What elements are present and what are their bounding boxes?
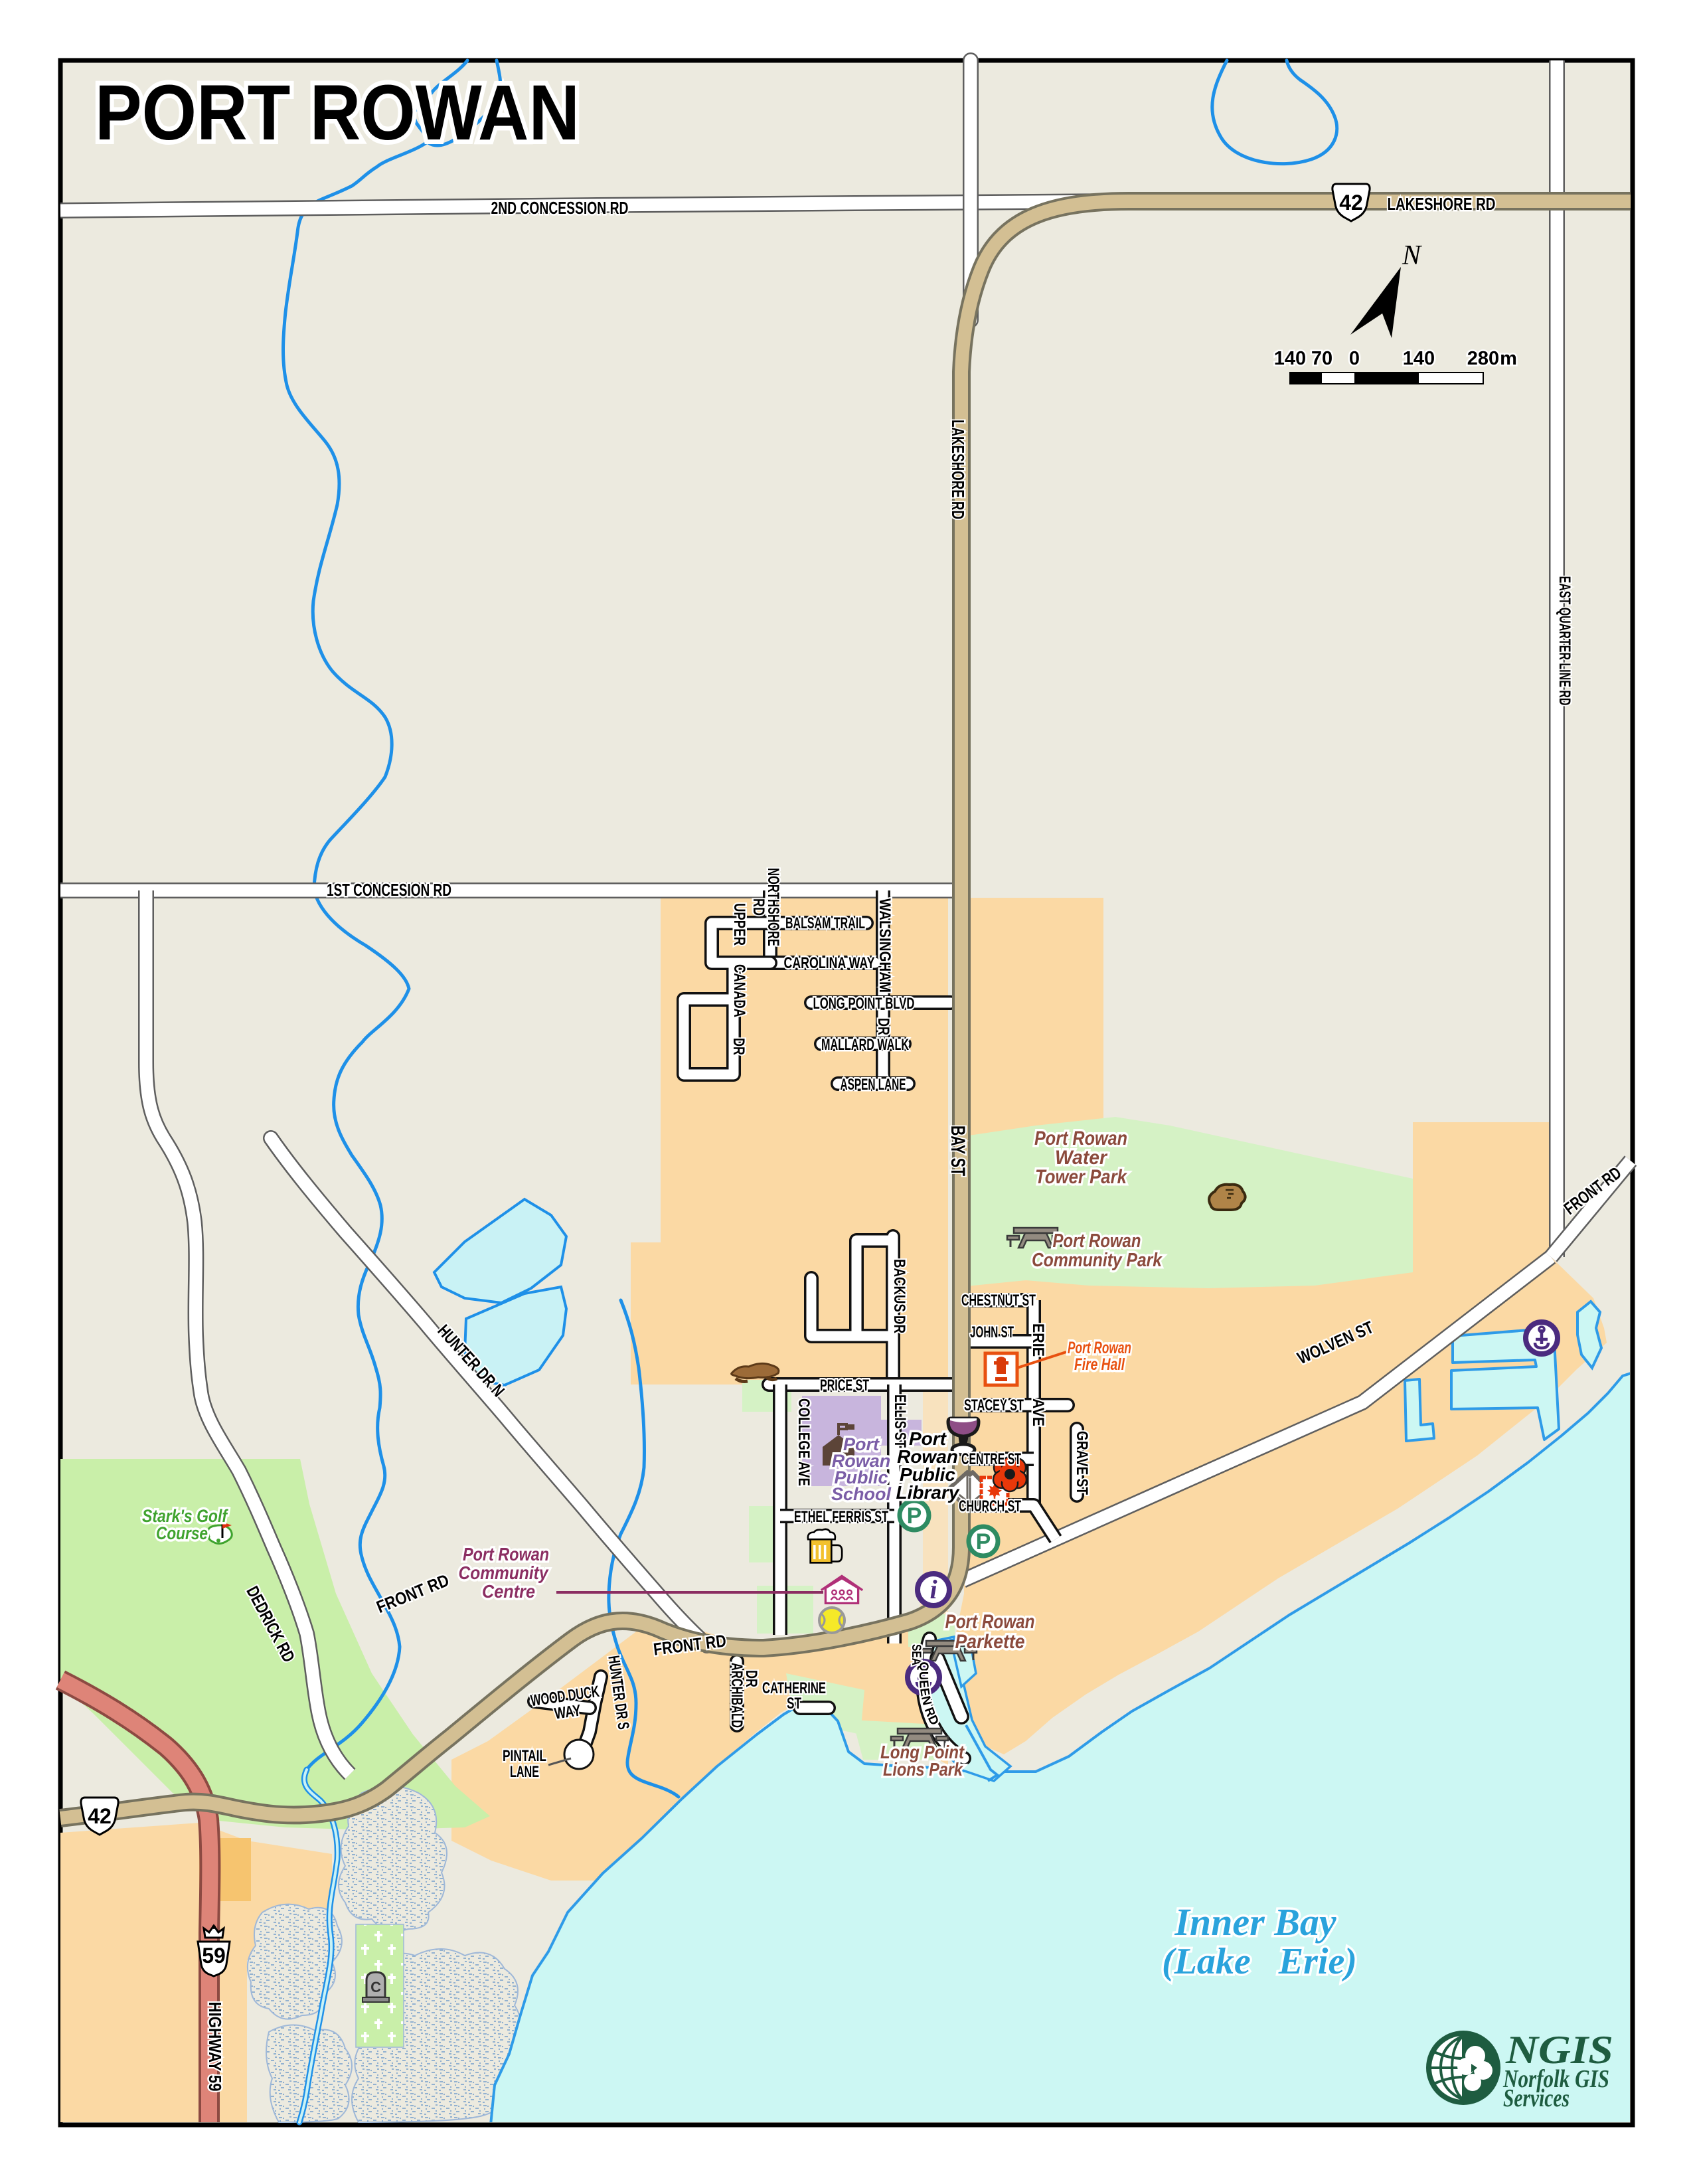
- svg-text:59: 59: [202, 1944, 226, 1968]
- svg-text:CHESTNUT ST: CHESTNUT ST: [961, 1292, 1036, 1309]
- svg-text:DR: DR: [742, 1670, 760, 1687]
- svg-text:RD: RD: [750, 898, 767, 916]
- svg-text:PORT ROWAN: PORT ROWAN: [95, 69, 580, 157]
- svg-text:C: C: [370, 1979, 381, 1995]
- svg-text:Tower Park: Tower Park: [1035, 1166, 1127, 1188]
- svg-text:Centre: Centre: [482, 1581, 535, 1602]
- svg-text:Library: Library: [896, 1482, 960, 1503]
- svg-text:Lions Park: Lions Park: [883, 1759, 963, 1780]
- svg-text:LONG POINT BLVD: LONG POINT BLVD: [813, 995, 915, 1013]
- svg-text:Port Rowan: Port Rowan: [1053, 1230, 1141, 1252]
- svg-text:2ND CONCESSION RD: 2ND CONCESSION RD: [491, 198, 629, 218]
- svg-text:WALSINGHAM: WALSINGHAM: [876, 898, 894, 993]
- svg-text:Parkette: Parkette: [955, 1631, 1025, 1653]
- svg-text:GRAVE ST: GRAVE ST: [1073, 1431, 1091, 1495]
- svg-text:CAROLINA WAY: CAROLINA WAY: [784, 954, 875, 972]
- svg-text:70: 70: [1311, 348, 1332, 369]
- svg-text:Port Rowan: Port Rowan: [463, 1544, 549, 1564]
- svg-text:BAY ST: BAY ST: [947, 1126, 969, 1176]
- svg-text:LAKESHORE RD: LAKESHORE RD: [1388, 194, 1496, 214]
- svg-text:42: 42: [88, 1804, 112, 1828]
- svg-text:ASPEN LANE: ASPEN LANE: [841, 1076, 906, 1094]
- svg-text:CANADA: CANADA: [730, 964, 748, 1017]
- svg-text:DR: DR: [730, 1038, 748, 1055]
- svg-text:(Lake Erie): (Lake Erie): [1162, 1941, 1357, 1982]
- svg-text:ST: ST: [787, 1695, 801, 1713]
- svg-text:Port Rowan: Port Rowan: [945, 1611, 1035, 1633]
- svg-text:BALSAM TRAIL: BALSAM TRAIL: [785, 914, 865, 932]
- svg-text:BACKUS DR: BACKUS DR: [890, 1259, 908, 1333]
- svg-text:1ST CONCESION RD: 1ST CONCESION RD: [327, 880, 451, 900]
- svg-text:HIGHWAY 59: HIGHWAY 59: [205, 2002, 225, 2092]
- svg-text:ELLIS ST: ELLIS ST: [891, 1394, 909, 1448]
- svg-text:LAKESHORE RD: LAKESHORE RD: [948, 420, 968, 519]
- svg-text:Community Park: Community Park: [1032, 1250, 1163, 1271]
- svg-text:140: 140: [1274, 348, 1306, 369]
- svg-text:AVE: AVE: [1029, 1398, 1047, 1426]
- svg-text:42: 42: [1339, 191, 1363, 214]
- svg-text:ERIE: ERIE: [1029, 1323, 1047, 1357]
- svg-text:WAY: WAY: [553, 1701, 582, 1722]
- svg-text:LANE: LANE: [510, 1763, 539, 1781]
- svg-text:CENTRE ST: CENTRE ST: [961, 1450, 1021, 1468]
- svg-text:N: N: [1402, 240, 1422, 271]
- svg-text:PRICE ST: PRICE ST: [820, 1377, 869, 1394]
- svg-text:JOHN ST: JOHN ST: [970, 1323, 1014, 1341]
- svg-text:COLLEGE AVE: COLLEGE AVE: [795, 1398, 813, 1486]
- svg-text:280: 280: [1467, 348, 1499, 369]
- svg-text:PINTAIL: PINTAIL: [503, 1747, 546, 1765]
- svg-text:Inner Bay: Inner Bay: [1174, 1900, 1336, 1944]
- svg-text:ETHEL FERRIS ST: ETHEL FERRIS ST: [794, 1508, 888, 1526]
- svg-text:i: i: [929, 1574, 937, 1604]
- svg-text:Community: Community: [459, 1562, 549, 1583]
- svg-text:m: m: [1500, 348, 1517, 369]
- svg-text:UPPER: UPPER: [730, 903, 748, 946]
- svg-text:STACEY ST: STACEY ST: [964, 1396, 1024, 1414]
- svg-text:0: 0: [1349, 348, 1360, 369]
- svg-text:EAST QUARTER LINE RD: EAST QUARTER LINE RD: [1556, 576, 1573, 706]
- svg-text:DR: DR: [874, 1018, 892, 1035]
- svg-text:Port Rowan: Port Rowan: [1068, 1339, 1131, 1357]
- svg-text:Fire Hall: Fire Hall: [1074, 1355, 1125, 1374]
- svg-text:140: 140: [1403, 348, 1435, 369]
- svg-text:Course: Course: [156, 1523, 208, 1543]
- svg-text:School: School: [831, 1484, 892, 1504]
- svg-text:Services: Services: [1503, 2084, 1570, 2112]
- svg-text:CHURCH ST: CHURCH ST: [959, 1497, 1021, 1515]
- svg-text:MALLARD WALK: MALLARD WALK: [821, 1036, 909, 1054]
